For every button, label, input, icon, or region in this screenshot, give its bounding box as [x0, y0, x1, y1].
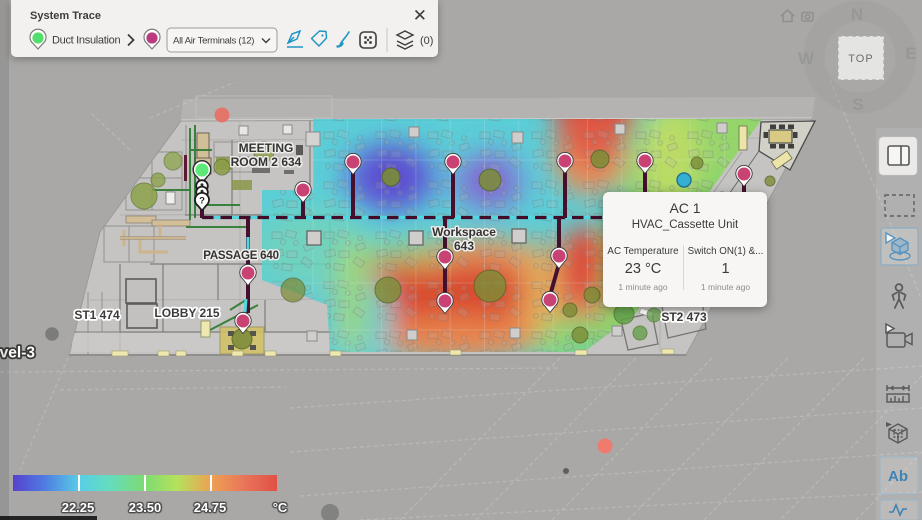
svg-text:Workspace: Workspace [432, 225, 496, 239]
svg-text:MEETING: MEETING [239, 141, 294, 155]
svg-text:643: 643 [454, 239, 474, 253]
svg-text:ROOM 2 634: ROOM 2 634 [231, 155, 302, 169]
svg-text:PASSAGE 640: PASSAGE 640 [203, 250, 279, 262]
svg-text:(0): (0) [420, 35, 433, 47]
svg-text:Ab: Ab [888, 468, 908, 485]
svg-text:All Air Terminals (12): All Air Terminals (12) [173, 36, 254, 47]
svg-text:S: S [852, 95, 863, 114]
svg-text:TOP: TOP [848, 53, 873, 65]
svg-text:E: E [905, 44, 916, 63]
svg-text:Duct Insulation: Duct Insulation [52, 35, 120, 47]
svg-text:ST1 474: ST1 474 [74, 308, 120, 322]
svg-text:LOBBY 215: LOBBY 215 [154, 306, 219, 320]
svg-text:W: W [798, 49, 815, 68]
svg-text:?: ? [199, 196, 205, 207]
svg-text:N: N [851, 5, 863, 24]
svg-text:ST2 473: ST2 473 [661, 310, 707, 324]
